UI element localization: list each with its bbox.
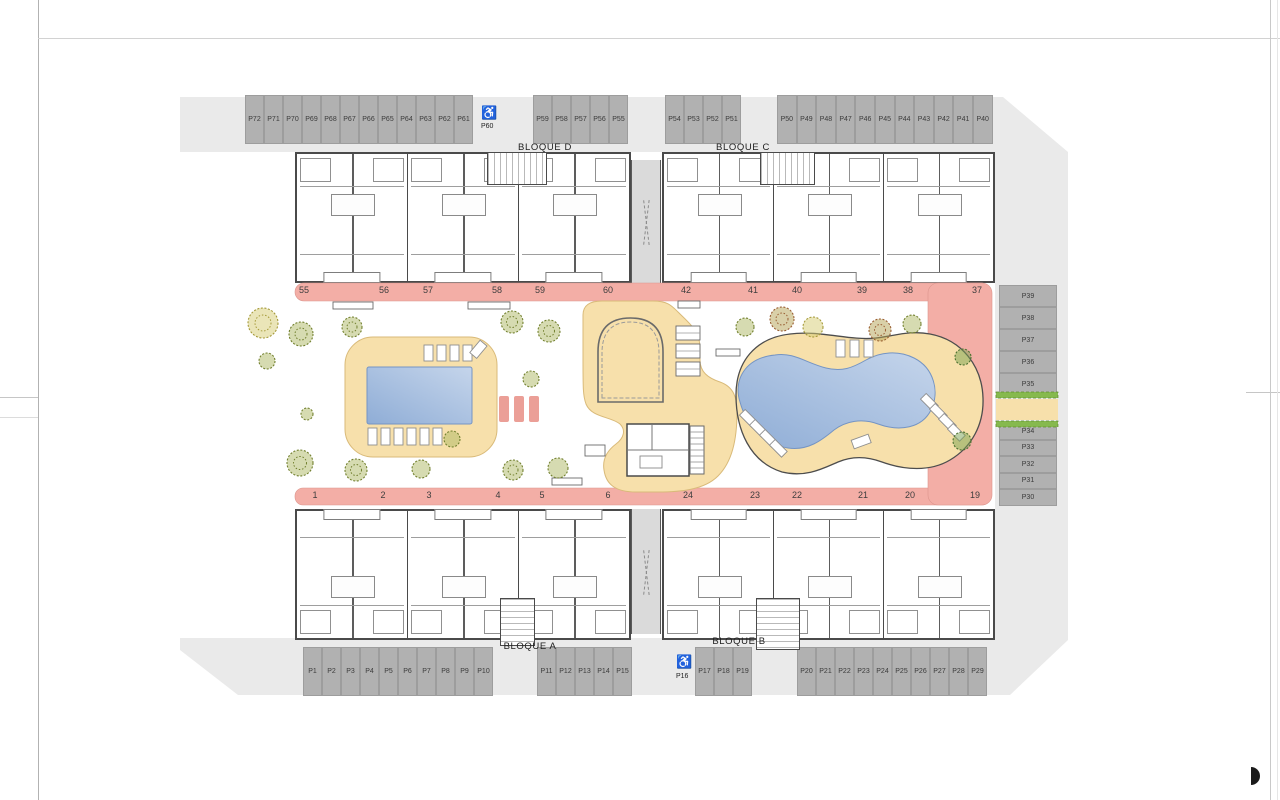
parking-stall: P72 <box>246 96 263 143</box>
pool-house <box>627 424 704 476</box>
collapse-handle-icon[interactable] <box>1251 767 1260 785</box>
parking-stall: P1 <box>304 648 321 695</box>
label-bloque-c: BLOQUE C <box>716 142 770 153</box>
site-plan-page: P72P71P70P69P68P67P66P65P64P63P62P61 ♿ P… <box>0 0 1280 800</box>
parking-stall: P59 <box>534 96 551 143</box>
parking-stall: P28 <box>950 648 967 695</box>
unit-module <box>297 154 408 281</box>
parking-stall: P20 <box>798 648 815 695</box>
unit-number: 2 <box>372 490 394 500</box>
unit-number: 3 <box>418 490 440 500</box>
parking-stall: P64 <box>398 96 415 143</box>
parking-stall: P51 <box>723 96 740 143</box>
parking-stall: P54 <box>666 96 683 143</box>
stair-core-c <box>760 152 815 185</box>
unit-number: 19 <box>964 490 986 500</box>
unit-number: 37 <box>966 285 988 295</box>
parking-stall: P58 <box>553 96 570 143</box>
ramp-corridor-top <box>631 160 661 283</box>
kidney-pool-deck <box>736 333 983 474</box>
parking-stall: P65 <box>379 96 396 143</box>
parking-stall: P24 <box>874 648 891 695</box>
parking-stall: P40 <box>974 96 992 143</box>
parking-stall: P41 <box>954 96 972 143</box>
stairs <box>690 426 704 474</box>
unit-number: 41 <box>742 285 764 295</box>
unit-number: 1 <box>304 490 326 500</box>
parking-stall: P67 <box>341 96 358 143</box>
unit-number: 42 <box>675 285 697 295</box>
page-margin-line-top <box>38 38 1280 39</box>
label-bloque-d: BLOQUE D <box>518 142 572 153</box>
parking-stall: P69 <box>303 96 320 143</box>
unit-number: 38 <box>897 285 919 295</box>
parking-stall: P14 <box>595 648 612 695</box>
parking-row-bottom-mid2: P17P18P19 <box>696 648 751 695</box>
unit-number: 57 <box>417 285 439 295</box>
parking-row-top-right-inner: P54P53P52P51 <box>666 96 740 143</box>
unit-module <box>664 154 774 281</box>
page-edge-line-2 <box>1277 0 1278 800</box>
fold-mark-left-2 <box>0 417 38 418</box>
unit-number: 24 <box>677 490 699 500</box>
handicap-stall-label-bottom: P16 <box>676 673 688 680</box>
parking-stall: P11 <box>538 648 555 695</box>
unit-number: 58 <box>486 285 508 295</box>
parking-stall: P5 <box>380 648 397 695</box>
parking-stall: P18 <box>715 648 732 695</box>
parking-stall: P26 <box>912 648 929 695</box>
unit-number: 56 <box>373 285 395 295</box>
unit-number: 39 <box>851 285 873 295</box>
unit-number: 22 <box>786 490 808 500</box>
parking-stall: P21 <box>817 648 834 695</box>
unit-number: 21 <box>852 490 874 500</box>
parking-row-top-left: P72P71P70P69P68P67P66P65P64P63P62P61 <box>246 96 472 143</box>
parking-stall: P48 <box>817 96 835 143</box>
parking-stall: P19 <box>734 648 751 695</box>
pergola-stack <box>676 326 700 376</box>
parking-row-bottom-left: P1P2P3P4P5P6P7P8P9P10 <box>304 648 492 695</box>
unit-number: 55 <box>293 285 315 295</box>
rectangular-pool <box>367 367 472 424</box>
unit-module <box>884 154 993 281</box>
unit-number: 20 <box>899 490 921 500</box>
page-margin-line-left <box>38 0 39 800</box>
parking-row-bottom-right: P20P21P22P23P24P25P26P27P28P29 <box>798 648 986 695</box>
parking-stall: P7 <box>418 648 435 695</box>
label-bloque-b: BLOQUE B <box>712 636 765 647</box>
unit-number: 59 <box>529 285 551 295</box>
parking-stall: P29 <box>969 648 986 695</box>
unit-number: 4 <box>487 490 509 500</box>
right-entrance <box>996 392 1058 427</box>
fold-mark-right <box>1246 392 1280 393</box>
parking-stall: P62 <box>436 96 453 143</box>
parking-stall: P3 <box>342 648 359 695</box>
parking-stall: P15 <box>614 648 631 695</box>
parking-stall: P45 <box>876 96 894 143</box>
parking-stall: P43 <box>915 96 933 143</box>
page-edge-line <box>1270 0 1271 800</box>
handicap-icon: ♿ <box>676 655 692 668</box>
parking-stall: P17 <box>696 648 713 695</box>
parking-stall: P46 <box>856 96 874 143</box>
parking-stall: P42 <box>935 96 953 143</box>
parking-stall: P70 <box>284 96 301 143</box>
fold-mark-left-1 <box>0 397 38 398</box>
parking-stall: P6 <box>399 648 416 695</box>
unit-number: 6 <box>597 490 619 500</box>
parking-stall: P47 <box>837 96 855 143</box>
parking-stall: P61 <box>455 96 472 143</box>
amenity-courtyard <box>230 278 1062 570</box>
handicap-icon: ♿ <box>481 106 497 119</box>
parking-stall: P23 <box>855 648 872 695</box>
parking-stall: P27 <box>931 648 948 695</box>
parking-stall: P25 <box>893 648 910 695</box>
parking-stall: P57 <box>572 96 589 143</box>
parking-stall: P52 <box>704 96 721 143</box>
parking-stall: P50 <box>778 96 796 143</box>
parking-stall: P44 <box>896 96 914 143</box>
parking-stall: P13 <box>576 648 593 695</box>
parking-row-top-mid: P59P58P57P56P55 <box>534 96 627 143</box>
parking-stall: P8 <box>437 648 454 695</box>
label-bloque-a: BLOQUE A <box>504 641 557 652</box>
parking-stall: P4 <box>361 648 378 695</box>
parking-stall: P2 <box>323 648 340 695</box>
building-bloque-d <box>295 152 631 283</box>
parking-stall: P49 <box>798 96 816 143</box>
unit-number: 60 <box>597 285 619 295</box>
building-bloque-c <box>662 152 995 283</box>
parking-stall: P63 <box>417 96 434 143</box>
parking-stall: P10 <box>475 648 492 695</box>
parking-stall: P22 <box>836 648 853 695</box>
left-pool-deck <box>345 337 497 457</box>
parking-stall: P12 <box>557 648 574 695</box>
parking-stall: P66 <box>360 96 377 143</box>
handicap-stall-label-top: P60 <box>481 123 493 130</box>
central-deck <box>583 301 737 492</box>
parking-stall: P68 <box>322 96 339 143</box>
parking-row-bottom-mid: P11P12P13P14P15 <box>538 648 631 695</box>
stair-core-d <box>487 152 547 185</box>
unit-number: 23 <box>744 490 766 500</box>
unit-number: 40 <box>786 285 808 295</box>
parking-stall: P71 <box>265 96 282 143</box>
unit-number: 5 <box>531 490 553 500</box>
parking-stall: P9 <box>456 648 473 695</box>
parking-stall: P53 <box>685 96 702 143</box>
parking-stall: P55 <box>610 96 627 143</box>
stair-core-a <box>500 598 535 646</box>
parking-row-top-right: P50P49P48P47P46P45P44P43P42P41P40 <box>778 96 992 143</box>
parking-stall: P56 <box>591 96 608 143</box>
